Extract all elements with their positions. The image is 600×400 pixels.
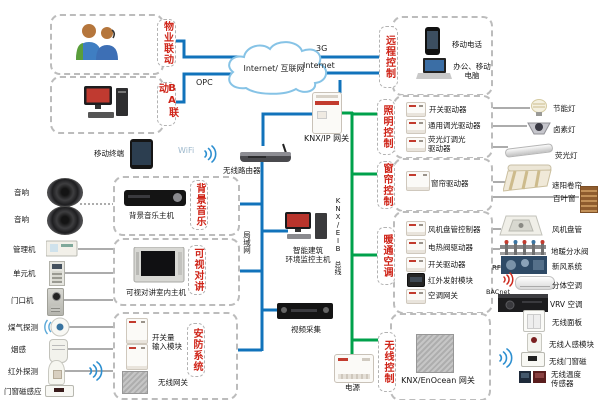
rf-waves-icon	[502, 269, 516, 289]
music-label: 背景音乐	[190, 180, 208, 230]
ac-gateway-icon	[406, 289, 426, 304]
music-box	[113, 176, 240, 236]
intercom-label: 可视对讲	[188, 245, 206, 295]
wireless-gateway-icon	[122, 371, 148, 394]
wireless-panel-label: 无线面板	[552, 318, 582, 327]
video-capture-label: 视频采集	[291, 325, 321, 334]
awning-icon	[503, 164, 553, 195]
remote-box	[392, 16, 493, 96]
awning-label: 遮阳卷帘	[552, 181, 582, 190]
door-station-icon	[47, 288, 64, 316]
knx-bus-label: KNX/EIB 总线	[334, 197, 341, 275]
knx-system-diagram: Internet/ 互联网 3G Internet OPC WiFi 局域网 K…	[0, 0, 600, 400]
mobile-phone-icon	[425, 27, 440, 55]
intercom-host-label: 可视对讲室内主机	[126, 288, 186, 297]
manager-unit-icon	[46, 239, 78, 257]
dimmer-actuator-icon	[406, 119, 426, 134]
hvac-label: 暖通空调	[377, 227, 395, 285]
wireless-door-magnet-icon	[521, 352, 545, 367]
knx-ip-gateway-icon	[312, 92, 342, 134]
enocean-gateway-icon	[416, 334, 454, 373]
security-label: 安防系统	[187, 323, 205, 377]
enocean-gateway-label: KNX/EnOcean 网关	[399, 376, 477, 386]
door-magnet-label: 门窗磁感应	[4, 387, 42, 396]
unit-machine-label: 单元机	[13, 269, 36, 278]
remote-label: 远程控制	[379, 26, 398, 88]
wireless-temp-sensor-icon	[519, 369, 547, 385]
ac-gateway-label: 空调网关	[428, 291, 458, 300]
music-host-icon	[124, 190, 186, 206]
split-ac-icon	[515, 276, 555, 290]
infrared-detector-icon	[48, 360, 65, 385]
building-host-icon	[285, 212, 329, 244]
unit-machine-icon	[49, 261, 65, 286]
switch-input-module-icon	[126, 344, 148, 370]
switch-actuator-label: 开关驱动器	[429, 105, 467, 114]
people-icon	[74, 22, 120, 60]
speaker-label: 音响	[14, 188, 29, 197]
rf-label: RF	[492, 264, 501, 273]
fluorescent-lamp-label: 荧光灯	[555, 151, 578, 160]
mobile-terminal-label: 移动终端	[94, 149, 124, 158]
infrared-detector-label: 红外探测	[8, 367, 38, 376]
laptop-label: 办公、移动 电脑	[450, 62, 494, 81]
valve-actuator-label: 电热阀驱动器	[428, 243, 473, 252]
switch-input-module-icon	[126, 318, 148, 344]
switch-actuator-icon	[406, 102, 426, 117]
blinds-icon	[580, 186, 598, 213]
fluorescent-dimmer-label: 荧光灯调光 驱动器	[428, 135, 466, 154]
wifi-waves-icon	[497, 345, 513, 369]
wireless-temp-sensor-label: 无线温度 传感器	[551, 370, 581, 389]
wireless-gateway-label: 无线网关	[158, 378, 188, 387]
dimmer-actuator-label: 通用调光驱动器	[428, 121, 481, 130]
ba-computer-icon	[84, 86, 130, 122]
video-capture-icon	[277, 303, 333, 319]
gas-detector-icon	[44, 316, 70, 338]
valve-actuator-icon	[406, 239, 426, 254]
intercom-monitor-icon	[131, 247, 187, 285]
laptop-icon	[416, 58, 452, 82]
wireless-pir-icon	[527, 333, 542, 352]
split-ac-label: 分体空调	[552, 281, 582, 290]
fan-coil-icon	[499, 214, 543, 238]
door-station-label: 门口机	[11, 296, 34, 305]
fan-coil-controller-icon	[406, 221, 426, 236]
ba-label: BA联动	[157, 82, 176, 126]
fan-coil-label: 风机盘管	[552, 225, 582, 234]
hvac-switch-actuator-label: 开关驱动器	[428, 260, 466, 269]
fresh-air-label: 新风系统	[552, 262, 582, 271]
wireless-router-icon	[238, 142, 294, 164]
vrv-ac-label: VRV 空调	[550, 300, 582, 309]
link-internet-label: Internet	[303, 61, 335, 70]
fan-coil-controller-label: 风机盘管控制器	[428, 225, 481, 234]
wifi-waves-icon	[203, 142, 218, 164]
tablet-icon	[130, 139, 153, 169]
ir-emitter-module-icon	[407, 273, 425, 287]
wifi-waves-icon	[87, 357, 103, 383]
speaker-icon	[47, 178, 83, 207]
manager-unit-label: 管理机	[13, 245, 36, 254]
speaker-label: 音响	[14, 215, 29, 224]
smoke-detector-label: 烟感	[11, 345, 26, 354]
curtain-actuator-label: 窗帘驱动器	[431, 179, 469, 188]
halogen-lamp-icon	[526, 119, 552, 137]
property-label: 物业联动	[157, 19, 176, 67]
power-supply-label: 电源	[345, 383, 360, 392]
power-supply-icon	[334, 354, 374, 383]
music-host-label: 背景音乐主机	[129, 211, 174, 220]
mobile-phone-label: 移动电话	[452, 40, 482, 49]
halogen-lamp-label: 卤素灯	[553, 125, 576, 134]
wifi-label: WiFi	[178, 146, 194, 155]
blinds-label: 百叶窗	[553, 194, 576, 203]
switch-input-module-label: 开关量 输入模块	[152, 333, 186, 352]
wireless-door-magnet-label: 无线门窗磁	[549, 357, 587, 366]
wireless-router-label: 无线路由器	[223, 166, 261, 175]
wireless-panel-icon	[523, 310, 545, 332]
fluorescent-dimmer-icon	[406, 137, 426, 152]
gas-detector-label: 煤气探测	[8, 323, 38, 332]
lighting-label: 照明控制	[377, 99, 395, 155]
link-3g-label: 3G	[316, 44, 327, 53]
ir-emitter-module-label: 红外发射模块	[428, 276, 473, 285]
wireless-label: 无线控制	[378, 332, 396, 392]
building-host-label: 智能建筑 环境监控主机	[281, 246, 335, 265]
knx-ip-gateway-label: KNX/IP 网关	[304, 134, 349, 144]
curtain-actuator-icon	[406, 171, 430, 191]
curtain-label: 窗帘控制	[377, 161, 395, 209]
energy-saving-lamp-label: 节能灯	[553, 104, 576, 113]
speaker-icon	[47, 206, 83, 235]
energy-saving-lamp-icon	[530, 99, 548, 117]
manifold-label: 地暖分水阀	[551, 247, 589, 256]
lan-label: 局域网	[243, 231, 251, 254]
door-magnet-icon	[45, 385, 74, 397]
hvac-switch-actuator-icon	[406, 257, 426, 272]
wireless-pir-label: 无线人感模块	[549, 340, 594, 349]
link-opc-label: OPC	[196, 78, 213, 87]
